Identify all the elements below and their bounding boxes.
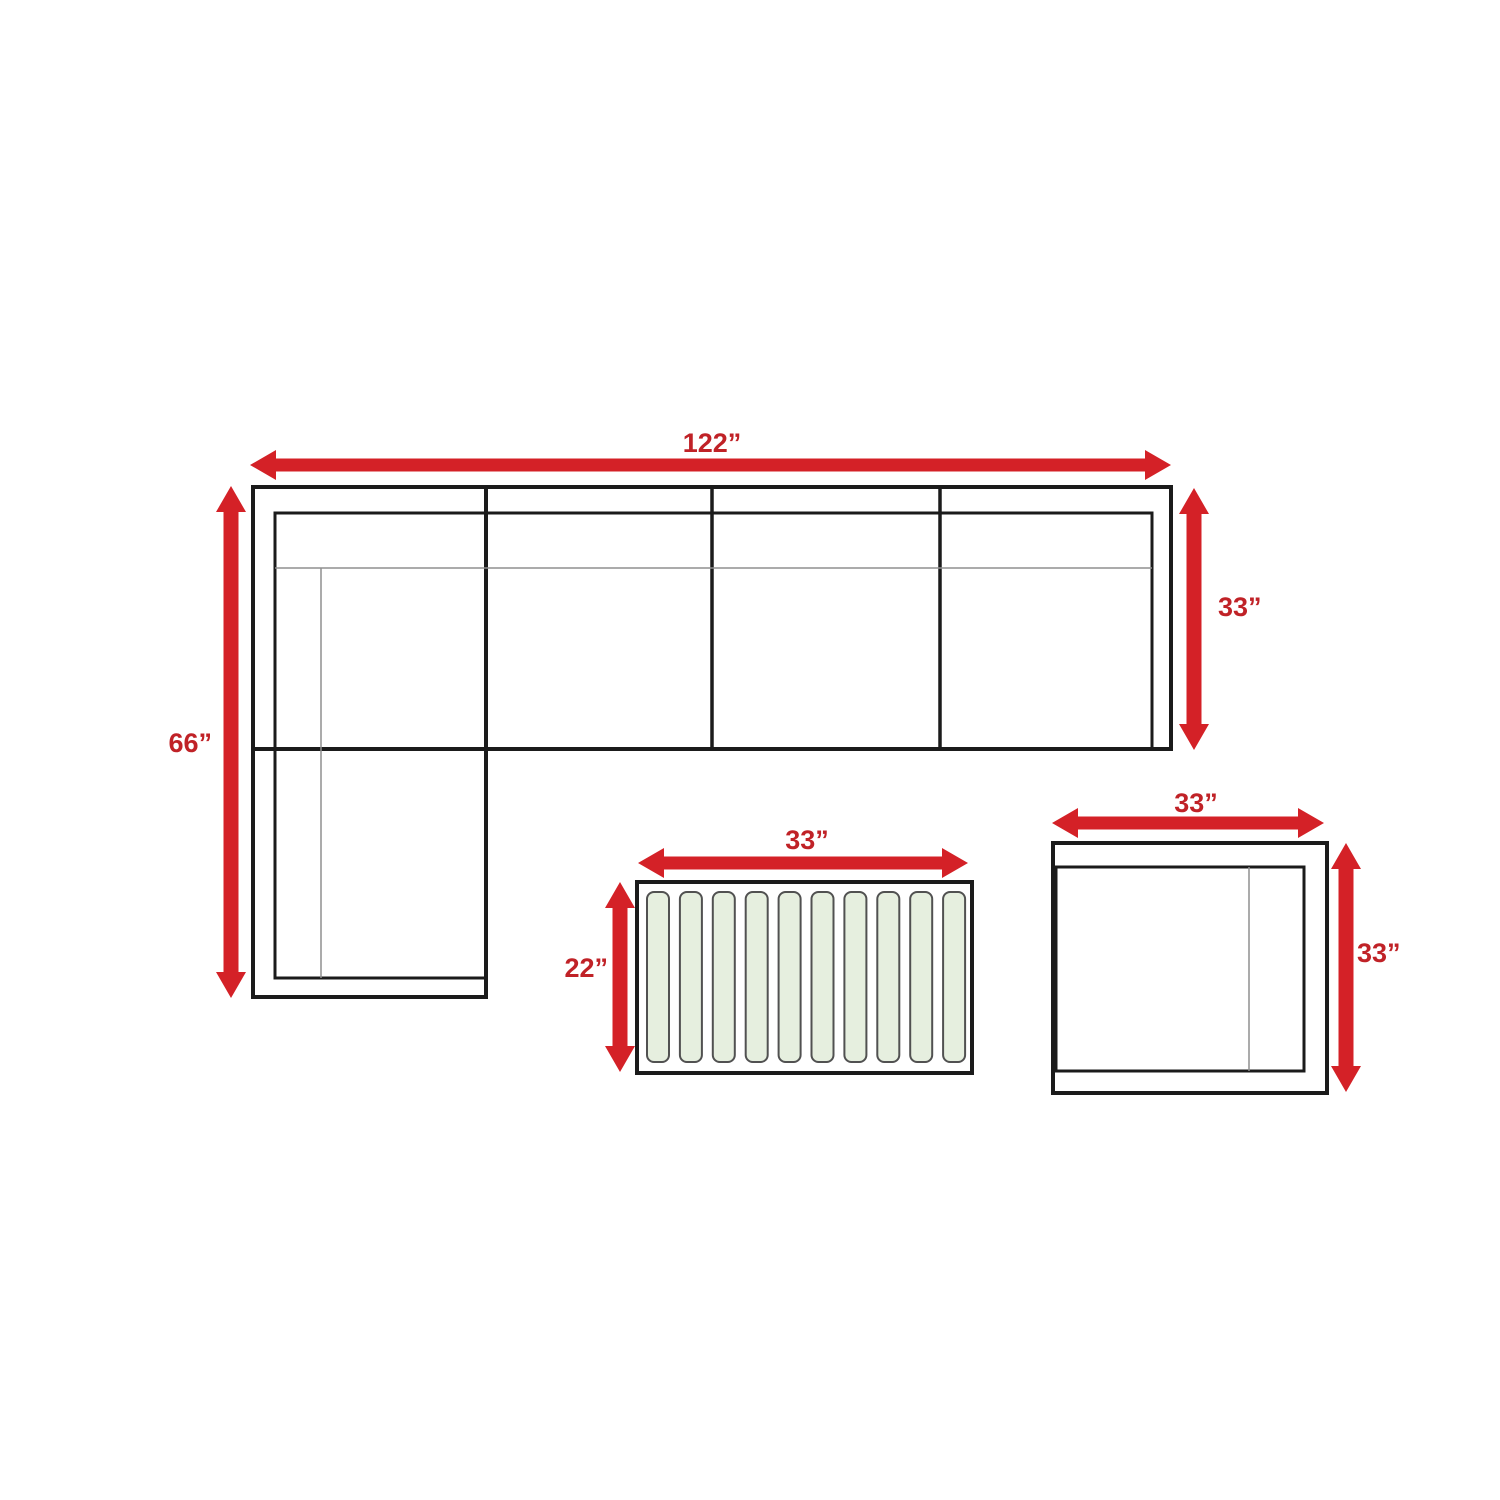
coffee-table-slat	[647, 892, 669, 1062]
coffee-table-slat	[680, 892, 702, 1062]
side-table-depth-label: 33”	[1357, 938, 1401, 968]
sofa-chaise-outline	[253, 487, 486, 997]
coffee-table-slat	[844, 892, 866, 1062]
coffee-table	[637, 882, 972, 1073]
coffee-table-slat	[746, 892, 768, 1062]
diagram-canvas: 122” 66” 33” 33” 22” 33” 33”	[0, 0, 1500, 1500]
coffee-table-slat	[910, 892, 932, 1062]
coffee-table-slat	[877, 892, 899, 1062]
coffee-table-slat	[812, 892, 834, 1062]
coffee-table-depth-arrow	[605, 882, 635, 1072]
coffee-table-slat	[943, 892, 965, 1062]
side-table-outline	[1053, 843, 1327, 1093]
sofa-chaise-length-label: 66”	[168, 728, 212, 758]
side-table	[1053, 843, 1327, 1093]
sofa-depth-arrow	[1179, 488, 1209, 750]
coffee-table-width-label: 33”	[785, 825, 829, 855]
coffee-table-depth-label: 22”	[564, 953, 608, 983]
side-table-width-label: 33”	[1174, 788, 1218, 818]
coffee-table-slat	[713, 892, 735, 1062]
sofa-chaise-length-arrow	[216, 486, 246, 998]
coffee-table-slat	[779, 892, 801, 1062]
coffee-table-slats	[647, 892, 965, 1062]
side-table-inner-outline	[1056, 867, 1304, 1071]
sofa-depth-label: 33”	[1218, 592, 1262, 622]
sofa-width-label: 122”	[683, 428, 742, 458]
furniture-dimension-diagram: 122” 66” 33” 33” 22” 33” 33”	[0, 0, 1500, 1500]
